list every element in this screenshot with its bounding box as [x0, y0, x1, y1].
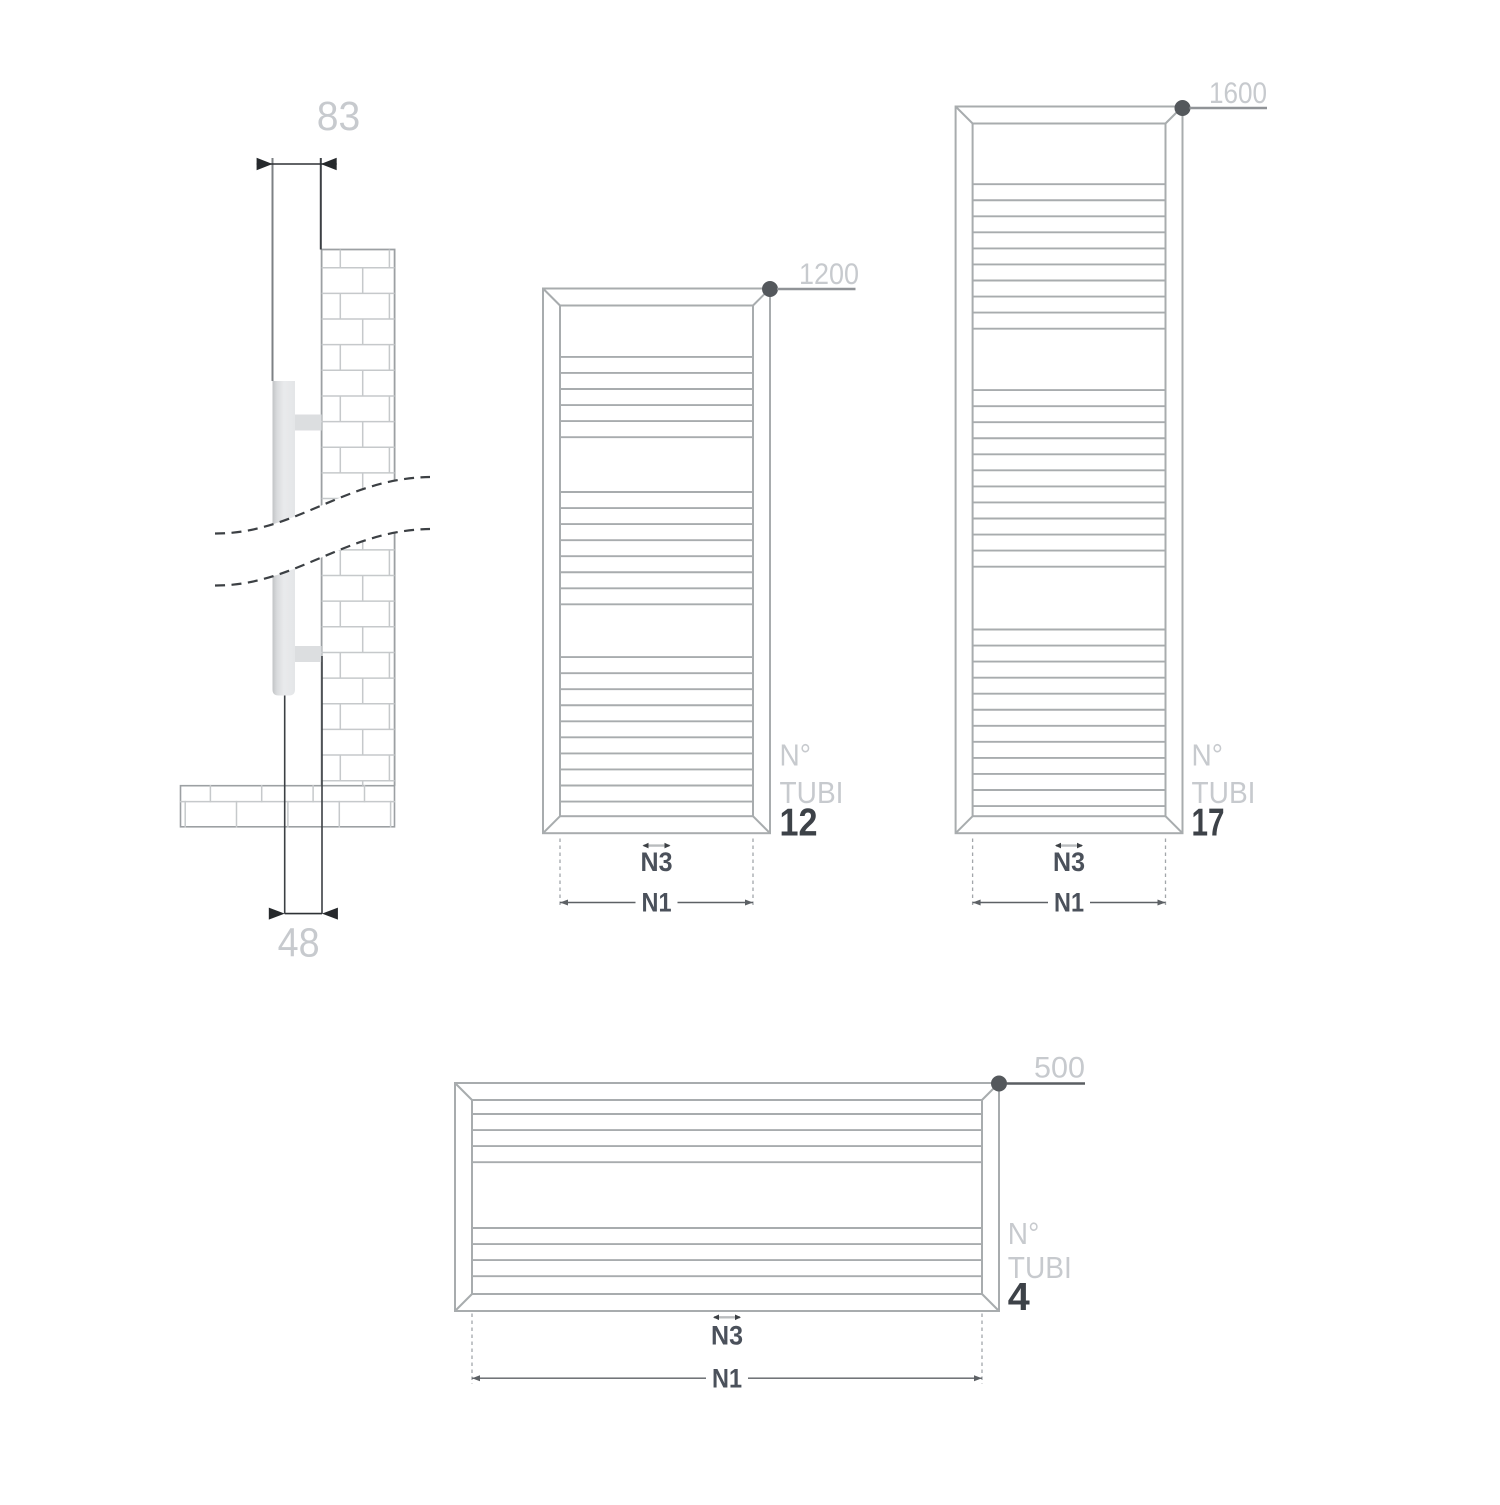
svg-text:N1: N1 — [712, 1364, 742, 1394]
svg-text:N3: N3 — [641, 847, 673, 877]
svg-text:N3: N3 — [1053, 847, 1085, 877]
svg-text:N1: N1 — [1054, 887, 1084, 917]
svg-text:17: 17 — [1192, 802, 1225, 845]
svg-text:12: 12 — [780, 802, 818, 845]
svg-text:48: 48 — [278, 920, 320, 966]
svg-text:N°: N° — [1192, 738, 1224, 773]
svg-text:N3: N3 — [711, 1321, 743, 1351]
svg-text:83: 83 — [317, 93, 361, 139]
svg-text:4: 4 — [1008, 1276, 1030, 1319]
svg-text:N°: N° — [780, 738, 812, 773]
svg-text:500: 500 — [1034, 1052, 1085, 1085]
svg-text:1600: 1600 — [1209, 77, 1267, 110]
svg-text:1200: 1200 — [799, 258, 859, 291]
svg-text:N1: N1 — [642, 887, 672, 917]
svg-text:N°: N° — [1008, 1216, 1040, 1251]
